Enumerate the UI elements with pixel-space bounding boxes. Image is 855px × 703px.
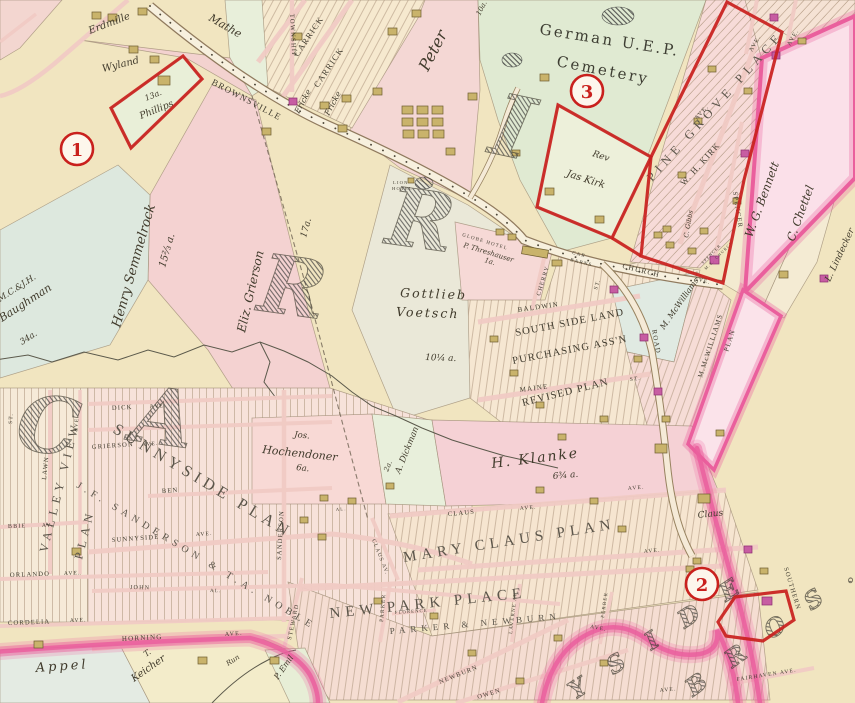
atlas-map-screenshot: C A R R I Y S I D E B R O S . Mathe Erdm… bbox=[0, 0, 855, 703]
label-al-john: AL. bbox=[210, 589, 222, 594]
label-st-left: ST. bbox=[8, 413, 15, 424]
label-hochendoner-1: Jos. bbox=[292, 430, 311, 442]
label-lion-hotel-2: HOTEL bbox=[392, 186, 413, 191]
label-ben: BEN bbox=[162, 487, 179, 495]
label-orlando: ORLANDO bbox=[10, 571, 50, 579]
label-voetsch-acres: 10¼ a. bbox=[425, 352, 457, 364]
label-ave-dick: AVE. bbox=[150, 403, 167, 410]
label-ave-sunnyside: AVE. bbox=[196, 531, 213, 538]
label-al-mc: AL. bbox=[336, 506, 347, 512]
label-hochendoner-acres: 6a. bbox=[296, 463, 310, 474]
label-ave-horning: AVE. bbox=[225, 631, 243, 638]
label-lion-hotel-1: LION bbox=[393, 180, 409, 185]
map-canvas: C A R R I Y S I D E B R O S . Mathe Erdm… bbox=[0, 0, 855, 703]
marker-1-number: 1 bbox=[71, 140, 84, 161]
marker-3[interactable]: 3 bbox=[571, 75, 603, 107]
label-cordelia: CORDELIA bbox=[8, 619, 51, 627]
building-in-region-2 bbox=[762, 597, 772, 605]
label-klanke-acres: 6¾ a. bbox=[552, 469, 579, 482]
label-ave-grierson: AVE. bbox=[142, 441, 159, 448]
marker-2[interactable]: 2 bbox=[686, 568, 718, 600]
big-letter-r: R bbox=[251, 235, 332, 338]
big-letter-r2: R bbox=[379, 168, 460, 271]
label-av-robbie: AV. bbox=[42, 523, 54, 529]
label-ave-orlando: AVE. bbox=[64, 570, 81, 577]
marker-3-number: 3 bbox=[581, 82, 594, 103]
label-ave-cordelia: AVE. bbox=[70, 617, 87, 624]
label-dick: DICK bbox=[112, 404, 133, 412]
label-john: JOHN bbox=[130, 585, 150, 591]
label-robbie: BBIE bbox=[8, 523, 27, 530]
marker-1[interactable]: 1 bbox=[61, 133, 93, 165]
label-voetsch-2: Voetsch bbox=[396, 304, 460, 321]
label-voetsch-1: Gottlieb bbox=[400, 285, 467, 302]
marker-2-number: 2 bbox=[696, 575, 709, 596]
